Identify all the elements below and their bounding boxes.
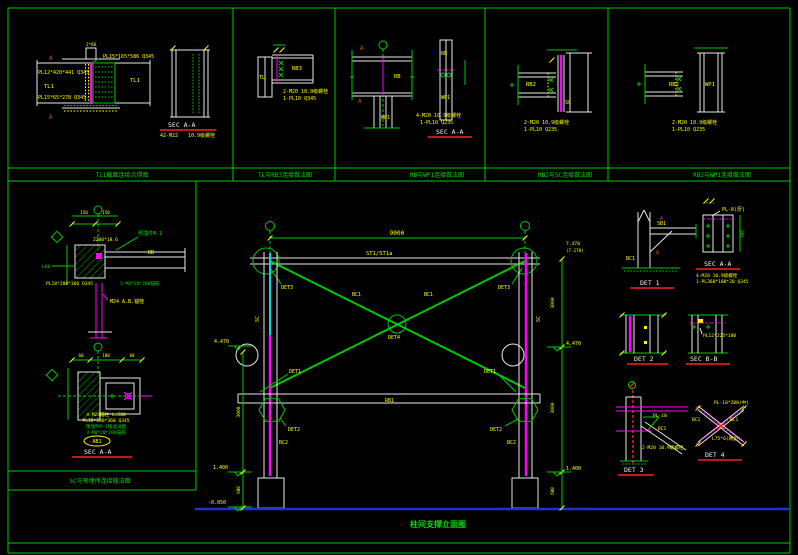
sec-aa-title-d2: SEC A-A (84, 448, 111, 456)
bolt-grade-note: 10.9级螺栓 (188, 132, 215, 139)
det4-plate-label: PL-10*200(中) (714, 399, 749, 406)
bolt-count-note: 42-M22 (160, 133, 178, 139)
p5-bolt-note: 2-M20 10.9级螺栓 (672, 119, 717, 126)
dim-600-right: 600 (550, 487, 555, 495)
channel-label: Z200*18.6 (93, 237, 118, 243)
col-seg-label-left: BC2 (279, 440, 288, 446)
p2-plate-note: 1-PL10 Q345 (283, 96, 316, 102)
braced-bay-elevation: 9000 ST1/ST1a DET4 BC1 BC1 DET3 DET3 SC … (195, 222, 790, 530)
column-label-left: SC (255, 316, 261, 322)
det3-plate-label: PL-10 (653, 413, 667, 419)
brace-label-right: BC1 (424, 292, 433, 298)
p3-col-label: WP1 (381, 115, 390, 121)
p4-plate-note: 1-PL10 Q235 (524, 127, 557, 133)
right-sec-aa: PL-8(厚) 360 SEC A-A 4-M20 10.9级螺栓 1-PL36… (696, 199, 749, 286)
col-seg-label-right: BC2 (507, 440, 516, 446)
panel-rb-wp1: A A RB WP1 RB WP1 4-M20 10.9级螺栓 1-PL10 Q… (350, 40, 472, 137)
panel-title-1: TL1截面连接点焊图 (96, 171, 149, 179)
p5-beam-label: RB2 (669, 82, 679, 88)
p2-bolt-note: 2-M20 10.9级螺栓 (283, 88, 328, 95)
d1-beam-label: RB (148, 250, 154, 256)
panel-title-4: RB2与SC连接做法图 (538, 171, 592, 179)
p3-marker-a-top: A (360, 45, 364, 52)
member-label-right: TL1 (130, 78, 140, 84)
member-label-left: TL1 (44, 84, 54, 90)
panel-title-2: TL与RB3连接做法图 (258, 171, 312, 179)
dim-3000-right-1: 3000 (550, 297, 556, 308)
d1-plate-note: PL18*200*360 Q345 (46, 281, 93, 287)
d2-dim-60a: 60 (78, 353, 84, 358)
level-7170-right: (7.170) (566, 248, 584, 253)
det4-angle-note: L75*6(两边) (712, 435, 741, 442)
p4-beam-label: RB2 (526, 82, 536, 88)
right-det1: SB1 BC1 A A DET 1 (622, 210, 696, 288)
p4-bolt-note: 2-M20 10.9级螺栓 (524, 119, 569, 126)
det3-title: DET 3 (624, 466, 644, 474)
level-0050-left: -0.050 (208, 500, 226, 506)
dim-600-left: 600 (236, 486, 241, 494)
det1-bc-label: BC1 (626, 256, 635, 262)
d1-dim-150a: 150 (80, 210, 88, 215)
d2-dim-60b: 60 (129, 353, 135, 358)
p3-col-side-label: WP1 (441, 95, 450, 101)
level-7470-right: 7.470 (566, 241, 580, 247)
elevation-title: 柱间支撑立面图 (410, 519, 466, 529)
level-1400-right: 1.400 (566, 466, 581, 472)
panel-title-3: RB与WP1连接做法图 (410, 171, 464, 179)
embed-plate-label: 预埋件M-1 (138, 230, 162, 237)
right-det2: DET 2 (620, 313, 669, 389)
sec-aa-title-right: SEC A-A (704, 260, 731, 268)
anchor-bolt-note: M24 A.B.锚栓 (110, 298, 144, 305)
d2-note-4: 3-M8*20*200锚筋 (86, 429, 126, 436)
det2-callout-left: DET2 (288, 427, 300, 433)
detail-embed-connection: 150 150 预埋件M-1 Z200*18.6 RB L60 PL18*200… (42, 206, 185, 338)
det1-callout-left: DET1 (289, 369, 301, 375)
mid-plate-note: PL12*420*441 Q345 (38, 70, 89, 76)
p4-col-label: SC (565, 100, 571, 106)
det4-bc-right: BC1 (730, 417, 739, 423)
brace-label-left: BC1 (352, 292, 361, 298)
cad-canvas: TL1截面连接点焊图 TL与RB3连接做法图 RB与WP1连接做法图 RB2与S… (0, 0, 798, 555)
dim-3000-left: 3000 (236, 406, 242, 417)
d1-stud-note: 3-M8*20*200锚筋 (120, 280, 160, 287)
right-sec-bb: PL12*225*180 SEC B-B (686, 315, 736, 364)
sec-aa-title-p1: SEC A-A (168, 121, 195, 129)
panel-rb2-wp1: RB2 WP1 2-M20 10.9级螺栓 1-PL10 Q235 (637, 48, 728, 133)
det1-callout-right: DET1 (484, 369, 496, 375)
sec-aa-title-p3: SEC A-A (436, 128, 463, 136)
det2-title: DET 2 (634, 355, 654, 363)
right-det3: PL-10 BC1 2-M20 10.9级螺栓 DET 3 (616, 390, 688, 475)
p3-beam-label: RB (394, 74, 401, 80)
detail-embed-section: 60 180 60 4-M24锚栓 L=500 PL18*200*360 Q34… (46, 343, 152, 457)
panel-rb2-sc: RB2 SC 2-M20 10.9级螺栓 1-PL10 Q235 (510, 50, 592, 133)
left-band-title: SC与预埋件连接做法图 (69, 477, 130, 485)
p3-marker-a-bottom: A (358, 98, 362, 105)
dim-3000-right-2: 3000 (550, 402, 556, 413)
det3-bolt-note: 2-M20 10.9级螺栓 (642, 444, 684, 451)
bottom-plate-note: PL15*65*270 Q345 (38, 95, 86, 101)
section-marker-a-bottom: A (49, 114, 53, 121)
right-det4: PL-10*200(中) BC1 BC1 L75*6(两边) DET 4 (692, 399, 749, 460)
level-1400-left: 1.400 (213, 465, 228, 471)
p3-beam-side-label: RB (441, 51, 447, 57)
level-4470-right: 4.470 (566, 341, 581, 347)
sec-aa-note-1: 4-M20 10.9级螺栓 (696, 272, 738, 279)
det2-callout-right: DET2 (490, 427, 502, 433)
sec-aa-note-2: 1-PL360*100*20 Q345 (696, 279, 749, 285)
sec-aa-plate-label: PL-8(厚) (722, 207, 745, 213)
det3-callout-left: DET3 (281, 285, 293, 291)
left-title-band: SC与预埋件连接做法图 (8, 471, 196, 490)
det1-marker-a-bottom: A (656, 250, 659, 256)
span-dimension: 9000 (390, 230, 405, 237)
top-strut-label: ST1/ST1a (366, 251, 393, 257)
level-4470-left: 4.470 (214, 339, 229, 345)
p5-col-label: WP1 (705, 82, 715, 88)
d2-dim-180: 180 (102, 353, 110, 358)
det4-callout: DET4 (388, 335, 400, 341)
d1-tag-label: L60 (42, 264, 51, 270)
sec-bb-title: SEC B-B (690, 355, 717, 363)
det4-bc-left: BC1 (692, 417, 701, 423)
p5-plate-note: 1-PL10 Q235 (672, 127, 705, 133)
panel-title-band: TL1截面连接点焊图 TL与RB3连接做法图 RB与WP1连接做法图 RB2与S… (96, 171, 751, 179)
tl-member-label: TL (259, 75, 265, 81)
det1-marker-a-top: A (660, 216, 663, 222)
panel-tl1-splice: 2*60 PL15*165*586 Q345 PL12*420*441 Q345… (37, 42, 216, 139)
sec-aa-dim-360: 360 (740, 230, 745, 238)
column-label-right: SC (536, 316, 542, 322)
panel-title-5: RB2与WP1连接做法图 (693, 171, 751, 179)
p3-plate-note: 1-PL10 Q235 (420, 120, 453, 126)
panel-tl-rb3: TL RB3 2-M20 10.9级螺栓 1-PL10 Q345 (258, 45, 328, 102)
det3-bc-label: BC1 (658, 426, 667, 432)
cad-drawing-sheet: TL1截面连接点焊图 TL与RB3连接做法图 RB与WP1连接做法图 RB2与S… (0, 0, 798, 555)
det3-callout-right: DET3 (498, 285, 510, 291)
d2-note-2: PL18*200*360 Q345 (82, 418, 129, 424)
det4-title: DET 4 (705, 451, 725, 459)
d2-note-1: 4-M24锚栓 L=500 (86, 411, 126, 418)
splice-top-dim: 2*60 (86, 42, 97, 47)
top-plate-note: PL15*165*586 Q345 (103, 54, 154, 60)
d1-dim-150b: 150 (102, 210, 110, 215)
det1-title: DET 1 (640, 279, 660, 287)
sec-bb-plate-note: PL12*225*180 (703, 333, 736, 339)
d2-note-3: 预埋件M-1埋设详图 (86, 423, 127, 430)
embed-tag: AB1 (92, 439, 101, 445)
p3-bolt-note: 4-M20 10.9级螺栓 (416, 112, 461, 119)
mid-beam-label: RB1 (385, 398, 394, 404)
section-marker-a-top: A (49, 55, 53, 62)
rb3-beam-label: RB3 (292, 66, 302, 72)
